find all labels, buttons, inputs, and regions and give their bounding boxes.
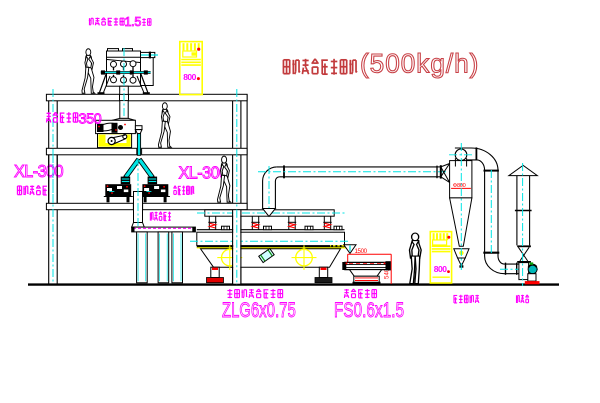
svg-text:Φ800: Φ800	[453, 183, 466, 189]
svg-text:800: 800	[183, 72, 196, 82]
svg-text:1.5: 1.5	[125, 15, 142, 29]
svg-text:XL-300: XL-300	[179, 163, 228, 183]
svg-text:FS0.6x1.5: FS0.6x1.5	[334, 297, 404, 321]
svg-text:350: 350	[79, 111, 102, 127]
svg-text:800: 800	[434, 264, 447, 274]
svg-text:1500: 1500	[355, 248, 368, 255]
svg-text:ZLG6x0.75: ZLG6x0.75	[222, 298, 296, 321]
svg-text:(500kg/h): (500kg/h)	[360, 48, 479, 78]
svg-text:XL-300: XL-300	[14, 161, 63, 181]
